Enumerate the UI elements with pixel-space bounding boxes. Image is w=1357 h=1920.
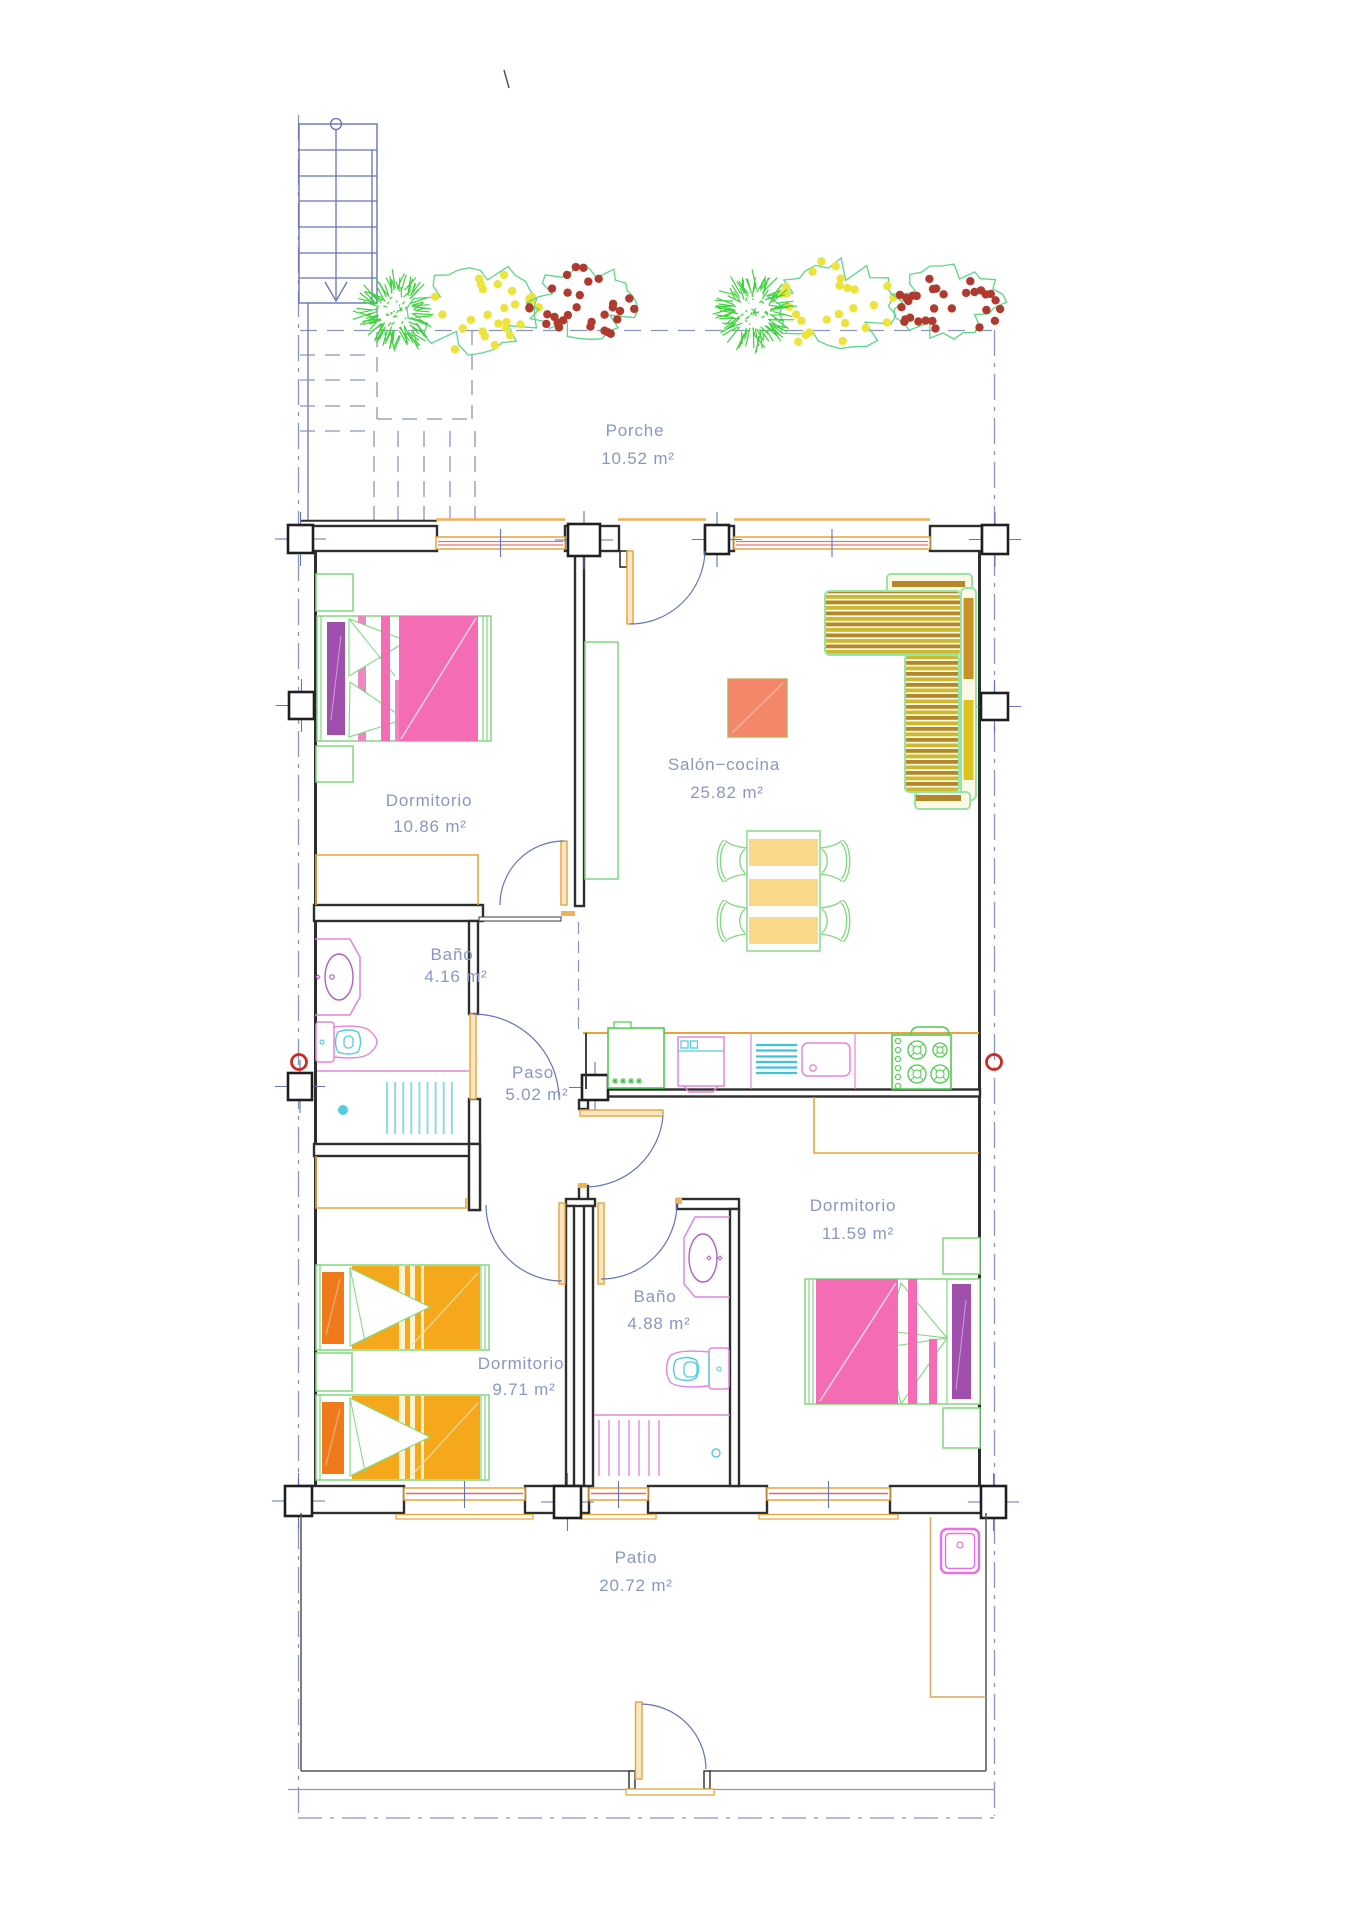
svg-text:25.82 m²: 25.82 m² — [690, 783, 764, 802]
svg-text:11.59 m²: 11.59 m² — [822, 1224, 894, 1243]
svg-text:Salón−cocina: Salón−cocina — [668, 755, 780, 774]
svg-text:20.72 m²: 20.72 m² — [599, 1576, 673, 1595]
svg-text:5.02 m²: 5.02 m² — [505, 1085, 568, 1104]
svg-text:Dormitorio: Dormitorio — [386, 791, 472, 810]
svg-text:Paso: Paso — [512, 1063, 554, 1082]
svg-text:4.16 m²: 4.16 m² — [424, 967, 487, 986]
svg-text:Porche: Porche — [606, 421, 665, 440]
svg-text:Baño: Baño — [634, 1287, 677, 1306]
svg-text:9.71 m²: 9.71 m² — [492, 1380, 555, 1399]
svg-text:Baño: Baño — [431, 945, 474, 964]
svg-text:10.86 m²: 10.86 m² — [393, 817, 467, 836]
svg-text:Dormitorio: Dormitorio — [478, 1354, 564, 1373]
svg-text:Patio: Patio — [615, 1548, 658, 1567]
svg-text:Dormitorio: Dormitorio — [810, 1196, 896, 1215]
svg-text:10.52 m²: 10.52 m² — [601, 449, 675, 468]
svg-text:4.88 m²: 4.88 m² — [627, 1314, 690, 1333]
